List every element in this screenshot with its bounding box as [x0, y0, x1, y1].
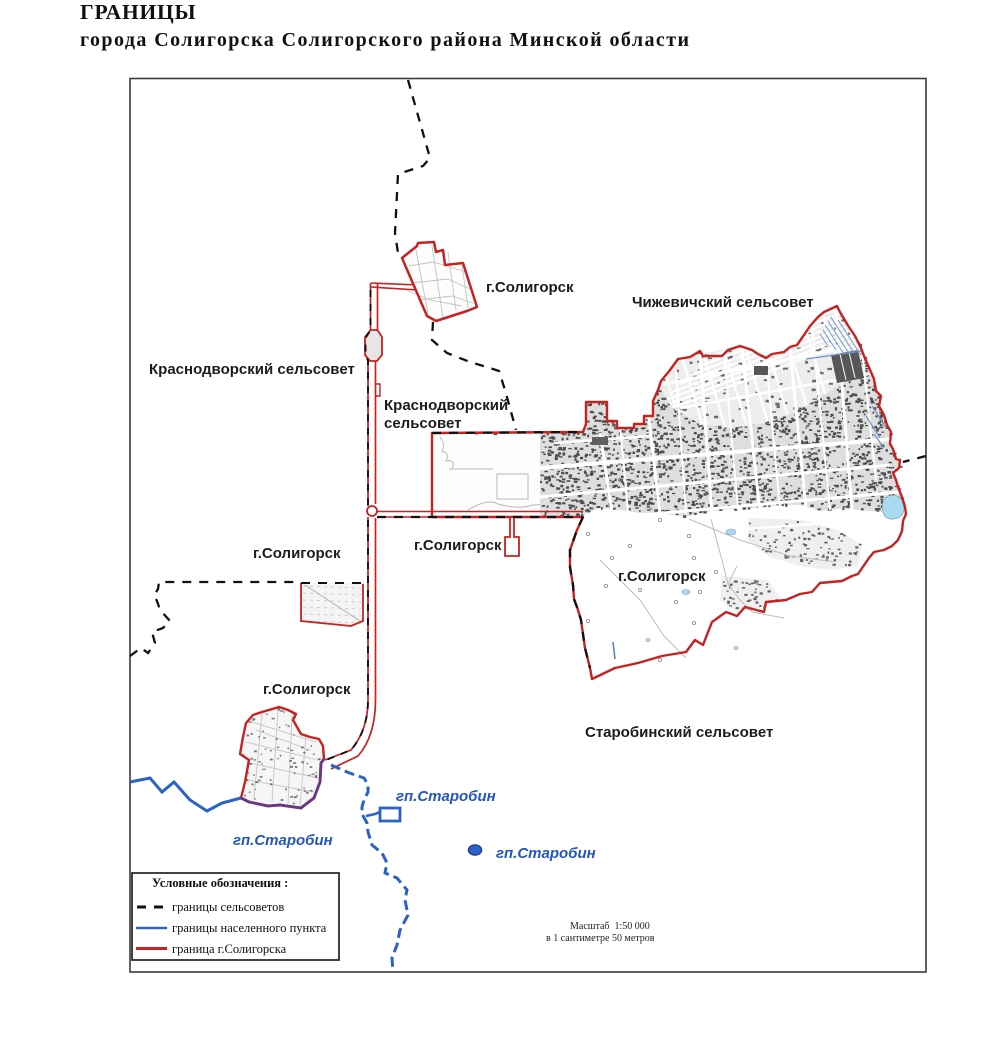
- svg-text:в 1 сантиметре 50 метров: в 1 сантиметре 50 метров: [546, 933, 655, 944]
- svg-text:границы сельсоветов: границы сельсоветов: [172, 900, 284, 914]
- svg-text:границы населенного пункта: границы населенного пункта: [172, 921, 327, 935]
- svg-text:г.Солигорск: г.Солигорск: [253, 545, 341, 562]
- svg-text:ГРАНИЦЫ: ГРАНИЦЫ: [80, 0, 196, 24]
- svg-text:граница г.Солигорска: граница г.Солигорска: [172, 942, 287, 956]
- svg-text:гп.Старобин: гп.Старобин: [396, 788, 496, 805]
- svg-text:Чижевичский сельсовет: Чижевичский сельсовет: [632, 294, 814, 311]
- svg-text:Условные обозначения :: Условные обозначения :: [152, 876, 288, 890]
- svg-text:гп.Старобин: гп.Старобин: [496, 845, 596, 862]
- svg-text:Краснодворский сельсовет: Краснодворский сельсовет: [149, 361, 355, 378]
- svg-text:Старобинский сельсовет: Старобинский сельсовет: [585, 724, 773, 741]
- svg-text:г.Солигорск: г.Солигорск: [486, 279, 574, 296]
- svg-text:г.Солигорск: г.Солигорск: [618, 568, 706, 585]
- svg-text:г.Солигорск: г.Солигорск: [414, 537, 502, 554]
- svg-text:города Солигорска Солигорского: города Солигорска Солигорского района Ми…: [80, 29, 689, 51]
- svg-text:Масштаб 1:50 000: Масштаб 1:50 000: [570, 921, 650, 932]
- svg-text:гп.Старобин: гп.Старобин: [233, 832, 333, 849]
- svg-text:г.Солигорск: г.Солигорск: [263, 681, 351, 698]
- svg-text:Краснодворский: Краснодворский: [384, 397, 508, 414]
- svg-text:сельсовет: сельсовет: [384, 415, 461, 432]
